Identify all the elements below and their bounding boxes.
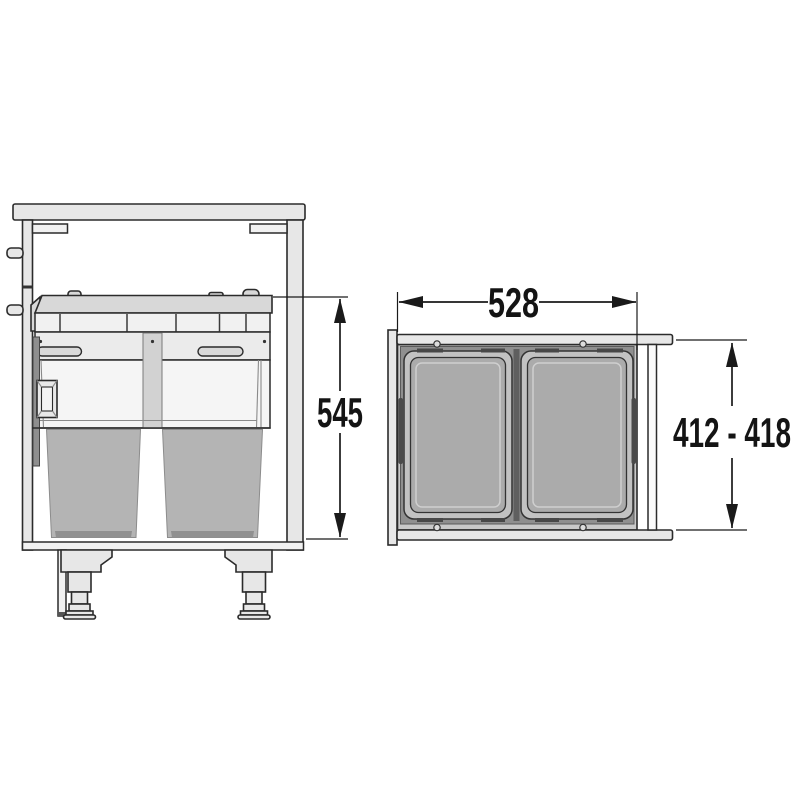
adjustable-foot-right bbox=[225, 550, 272, 619]
bin-handle-slot-left bbox=[38, 347, 82, 356]
arrowhead-left bbox=[399, 296, 424, 308]
waste-bucket-left bbox=[47, 430, 141, 538]
arrowhead-down bbox=[334, 513, 346, 538]
arrowhead-right bbox=[612, 296, 637, 308]
dimension-label-depth: 412 - 418 bbox=[673, 409, 791, 456]
waste-bin-left-top bbox=[404, 351, 512, 519]
frame-slot-right bbox=[632, 398, 637, 464]
bin-handle-slot-right bbox=[198, 347, 243, 356]
waste-bucket-right bbox=[163, 430, 263, 538]
dimension-label-height: 545 bbox=[317, 389, 363, 436]
cabinet-pullout-drawing: 545 bbox=[0, 0, 800, 800]
rivet bbox=[151, 340, 154, 343]
dimension-depth-412-418: 412 - 418 bbox=[673, 340, 791, 530]
arrowhead-up bbox=[726, 343, 738, 368]
front-panel-edge bbox=[388, 330, 397, 545]
dimension-label-width: 528 bbox=[488, 279, 539, 326]
pullout-front bbox=[31, 290, 272, 538]
right-top-bracket bbox=[250, 224, 287, 233]
arrowhead-up bbox=[334, 299, 346, 324]
rivet bbox=[263, 340, 266, 343]
pullout-lid bbox=[35, 296, 272, 314]
left-peg-upper bbox=[7, 248, 23, 258]
left-top-bracket bbox=[33, 224, 68, 233]
countertop bbox=[13, 204, 305, 220]
top-view: 528 412 - 418 bbox=[388, 279, 791, 545]
frame-slot-left bbox=[399, 398, 404, 464]
left-peg-lower bbox=[7, 305, 23, 315]
front-view: 545 bbox=[7, 204, 363, 619]
pullout-frame-top bbox=[388, 330, 673, 545]
slide-rail-bottom bbox=[397, 530, 673, 540]
frame-rail bbox=[35, 313, 270, 332]
door-mounting-bracket bbox=[37, 381, 57, 418]
adjustable-foot-left bbox=[61, 550, 112, 619]
bin-divider-top bbox=[514, 349, 520, 521]
arrowhead-down bbox=[726, 504, 738, 529]
cabinet-bottom-panel bbox=[23, 542, 304, 550]
technical-drawing-page: 545 bbox=[0, 0, 800, 800]
right-side-panel bbox=[287, 220, 303, 550]
left-side-panel bbox=[23, 220, 33, 550]
waste-bin-right-top bbox=[521, 351, 633, 519]
side-rail-right bbox=[648, 345, 657, 531]
bin-divider-column bbox=[143, 333, 162, 428]
